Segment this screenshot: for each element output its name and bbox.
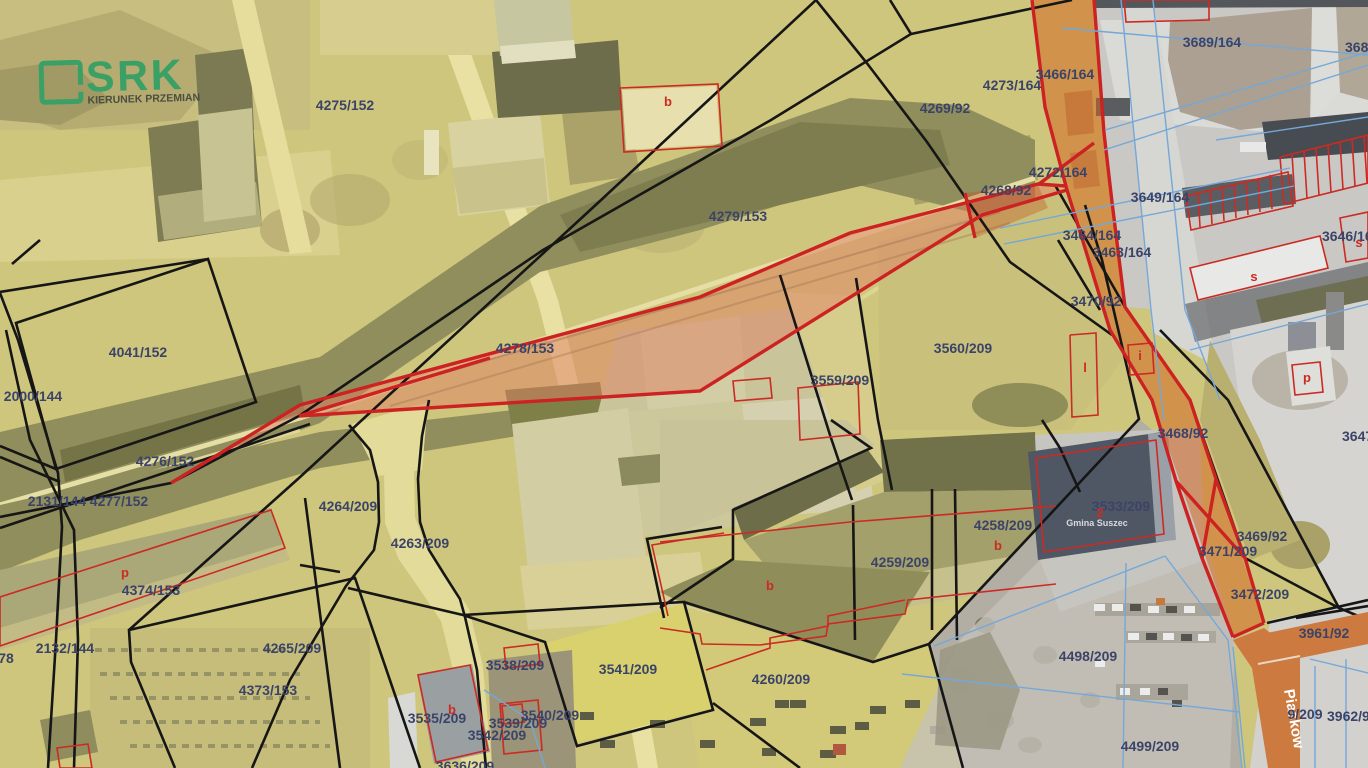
svg-text:4279/153: 4279/153 — [709, 208, 768, 224]
svg-text:2132/144: 2132/144 — [36, 640, 95, 656]
svg-text:4259/209: 4259/209 — [871, 554, 930, 570]
svg-text:3689/164: 3689/164 — [1183, 34, 1242, 50]
svg-text:3470/92: 3470/92 — [1071, 293, 1122, 309]
svg-text:2131/144: 2131/144 — [28, 493, 87, 509]
svg-text:3471/209: 3471/209 — [1199, 543, 1258, 559]
svg-text:3535/209: 3535/209 — [408, 710, 467, 726]
svg-text:2000/144: 2000/144 — [4, 388, 63, 404]
svg-text:p: p — [121, 565, 129, 580]
svg-text:3466/164: 3466/164 — [1036, 66, 1095, 82]
svg-text:b: b — [664, 94, 672, 109]
svg-text:4041/152: 4041/152 — [109, 344, 168, 360]
svg-text:4277/152: 4277/152 — [90, 493, 149, 509]
svg-text:3468/92: 3468/92 — [1158, 425, 1209, 441]
svg-text:3962/92: 3962/92 — [1327, 708, 1368, 724]
svg-text:s: s — [1355, 235, 1362, 250]
svg-text:4264/209: 4264/209 — [319, 498, 378, 514]
svg-text:4269/92: 4269/92 — [920, 100, 971, 116]
svg-text:4498/209: 4498/209 — [1059, 648, 1118, 664]
svg-text:4278/153: 4278/153 — [496, 340, 555, 356]
svg-text:3688/164: 3688/164 — [1345, 39, 1368, 55]
svg-text:4373/153: 4373/153 — [239, 682, 298, 698]
svg-text:78: 78 — [0, 650, 14, 666]
svg-text:4499/209: 4499/209 — [1121, 738, 1180, 754]
svg-text:3463/164: 3463/164 — [1093, 244, 1152, 260]
svg-text:4272/164: 4272/164 — [1029, 164, 1088, 180]
svg-text:b: b — [448, 702, 456, 717]
svg-text:3636/209: 3636/209 — [436, 758, 495, 768]
svg-text:4265/209: 4265/209 — [263, 640, 322, 656]
svg-text:3538/209: 3538/209 — [486, 657, 545, 673]
svg-text:3560/209: 3560/209 — [934, 340, 993, 356]
svg-text:4276/152: 4276/152 — [136, 453, 195, 469]
svg-text:b: b — [994, 538, 1002, 553]
svg-text:p: p — [1303, 370, 1311, 385]
svg-text:4258/209: 4258/209 — [974, 517, 1033, 533]
svg-text:4275/152: 4275/152 — [316, 97, 375, 113]
svg-text:3542/209: 3542/209 — [468, 727, 527, 743]
svg-text:2: 2 — [1096, 505, 1103, 520]
svg-text:3464/164: 3464/164 — [1063, 227, 1122, 243]
svg-text:3540/209: 3540/209 — [521, 707, 580, 723]
svg-text:3559/209: 3559/209 — [811, 372, 870, 388]
svg-text:4263/209: 4263/209 — [391, 535, 450, 551]
svg-text:3469/92: 3469/92 — [1237, 528, 1288, 544]
svg-text:3649/164: 3649/164 — [1131, 189, 1190, 205]
svg-text:3961/92: 3961/92 — [1299, 625, 1350, 641]
svg-text:4260/209: 4260/209 — [752, 671, 811, 687]
svg-text:9/209: 9/209 — [1287, 706, 1322, 722]
svg-text:i: i — [1138, 348, 1142, 363]
svg-text:3472/209: 3472/209 — [1231, 586, 1290, 602]
svg-text:4273/164: 4273/164 — [983, 77, 1042, 93]
svg-text:4374/153: 4374/153 — [122, 582, 181, 598]
svg-text:l: l — [1083, 360, 1087, 375]
svg-text:4268/92: 4268/92 — [981, 182, 1032, 198]
svg-text:3541/209: 3541/209 — [599, 661, 658, 677]
svg-text:s: s — [1250, 269, 1257, 284]
svg-text:b: b — [766, 578, 774, 593]
svg-text:3647/92: 3647/92 — [1342, 428, 1368, 444]
